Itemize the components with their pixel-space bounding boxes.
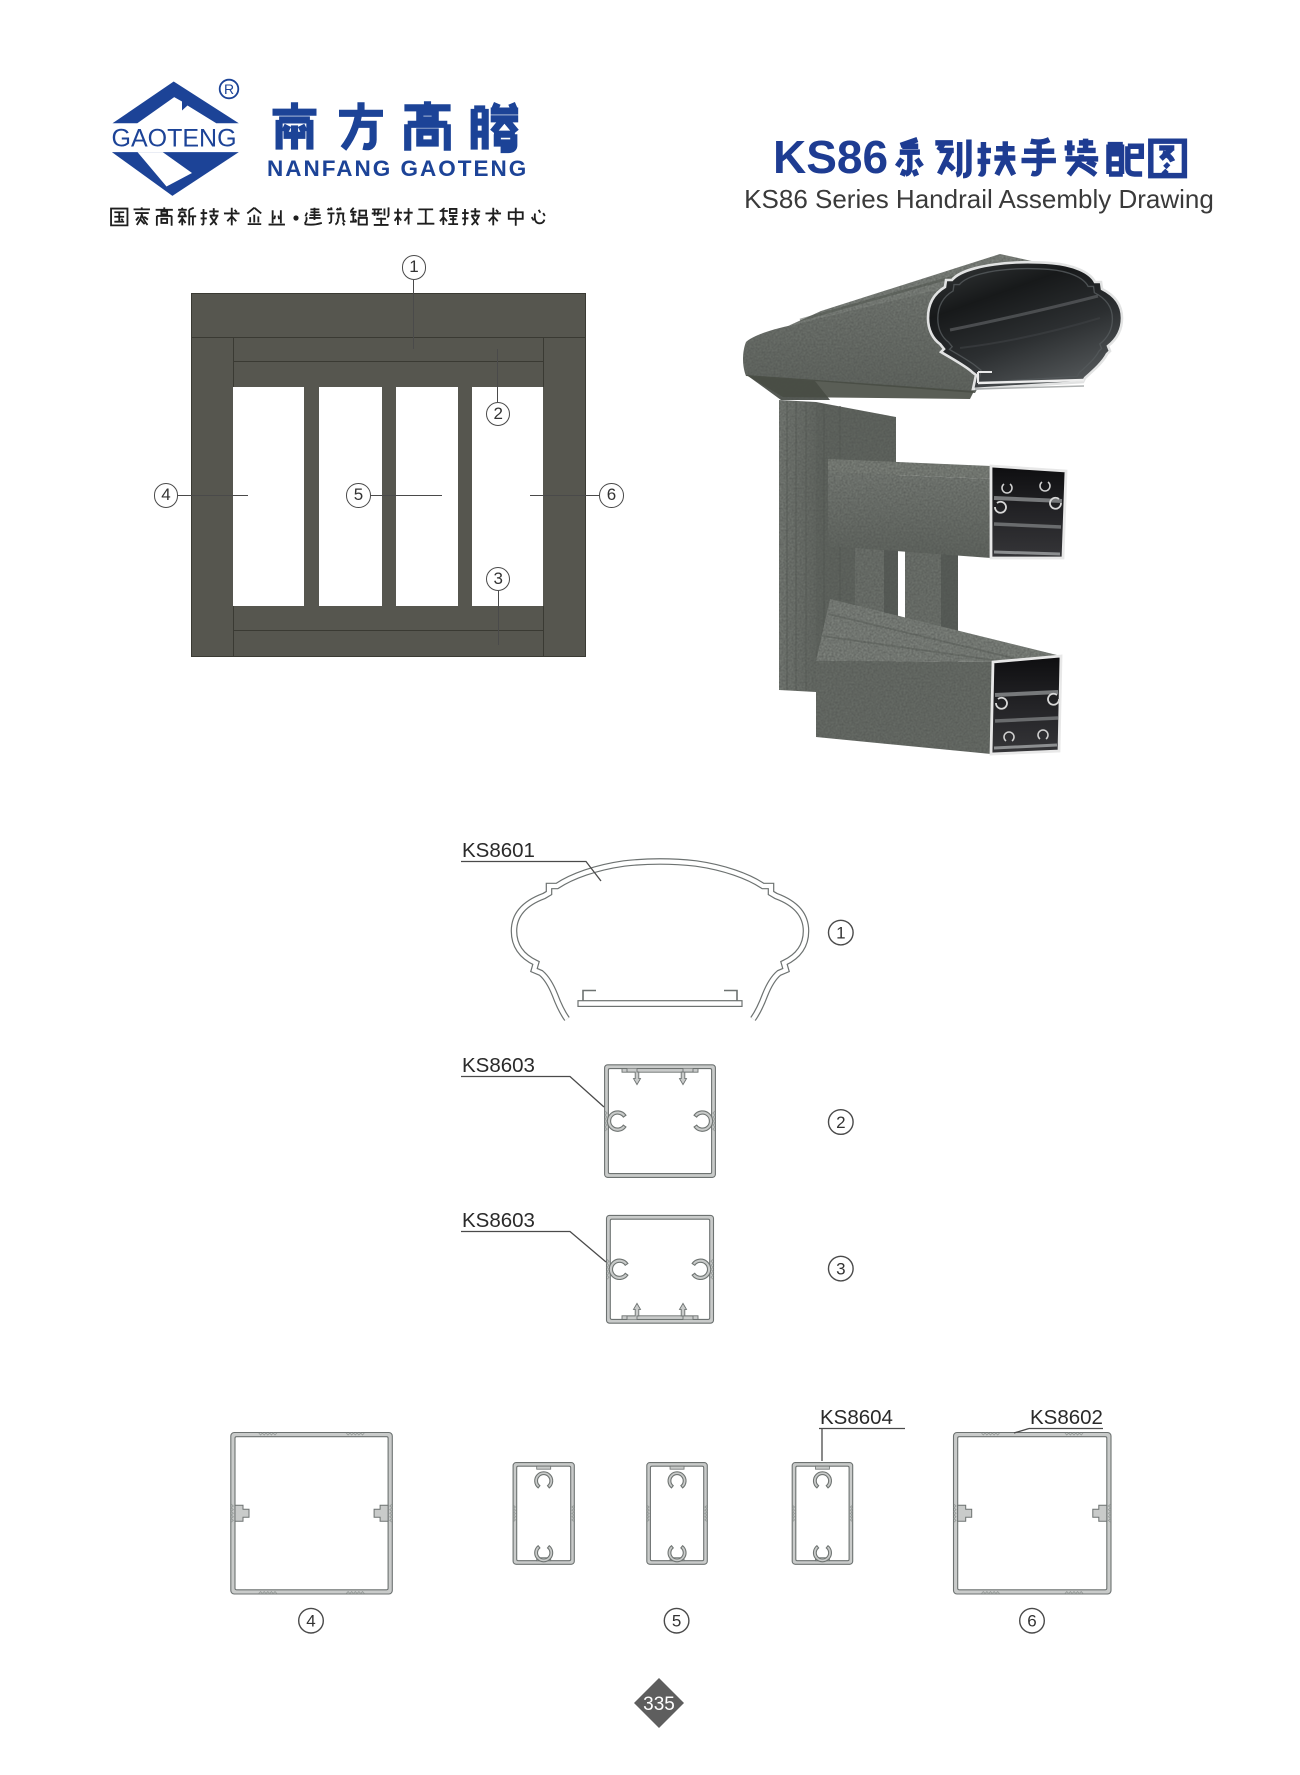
svg-text:1: 1	[836, 924, 845, 943]
svg-text:KS8602: KS8602	[1030, 1406, 1103, 1429]
svg-text:KS8603: KS8603	[462, 1054, 535, 1077]
svg-text:3: 3	[836, 1260, 845, 1279]
svg-text:KS86 Series Handrail Assembly: KS86 Series Handrail Assembly Drawing	[744, 184, 1214, 214]
svg-text:NANFANG GAOTENG: NANFANG GAOTENG	[267, 156, 528, 181]
svg-text:6: 6	[1027, 1612, 1036, 1631]
svg-text:335: 335	[643, 1694, 675, 1715]
svg-text:5: 5	[672, 1612, 681, 1631]
svg-text:2: 2	[836, 1113, 845, 1132]
svg-text:KS8604: KS8604	[820, 1406, 893, 1429]
svg-text:KS8603: KS8603	[462, 1209, 535, 1232]
svg-text:KS86: KS86	[773, 131, 888, 183]
svg-text:KS8601: KS8601	[462, 839, 535, 862]
svg-text:4: 4	[306, 1612, 315, 1631]
